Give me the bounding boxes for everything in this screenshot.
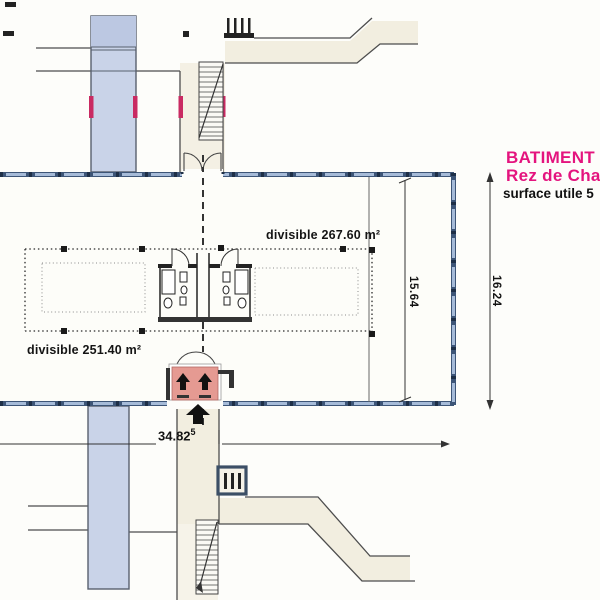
dimension-interior-depth-label: 15.64 — [407, 276, 419, 308]
zone-right-label: divisible 267.60 m² — [266, 228, 380, 242]
bottom-stairs-icon — [196, 520, 218, 594]
top-ramp — [91, 16, 136, 172]
bottom-grate-icon — [218, 467, 246, 494]
building-title: BATIMENT — [506, 148, 595, 168]
dimension-width-arrowhead — [441, 441, 450, 448]
top-grate-icon — [224, 18, 254, 38]
floor-plan-drawing — [0, 0, 600, 600]
dimension-width-value: 34.82 — [158, 428, 191, 443]
surface-title: surface utile 5 — [503, 186, 594, 201]
dimension-width-sup: 5 — [191, 427, 196, 437]
dimension-width-line — [0, 430, 447, 444]
dimension-overall-depth-label: 16.24 — [490, 275, 502, 307]
floor-title: Rez de Cha — [506, 166, 600, 186]
top-stairs-icon — [199, 62, 223, 140]
sanitary-core — [158, 249, 252, 322]
bottom-ramp — [88, 406, 129, 589]
dimension-width-label: 34.825 — [158, 427, 196, 443]
zone-left-label: divisible 251.40 m² — [27, 343, 141, 357]
floor-plan: BATIMENT Rez de Cha surface utile 5 divi… — [0, 0, 600, 600]
